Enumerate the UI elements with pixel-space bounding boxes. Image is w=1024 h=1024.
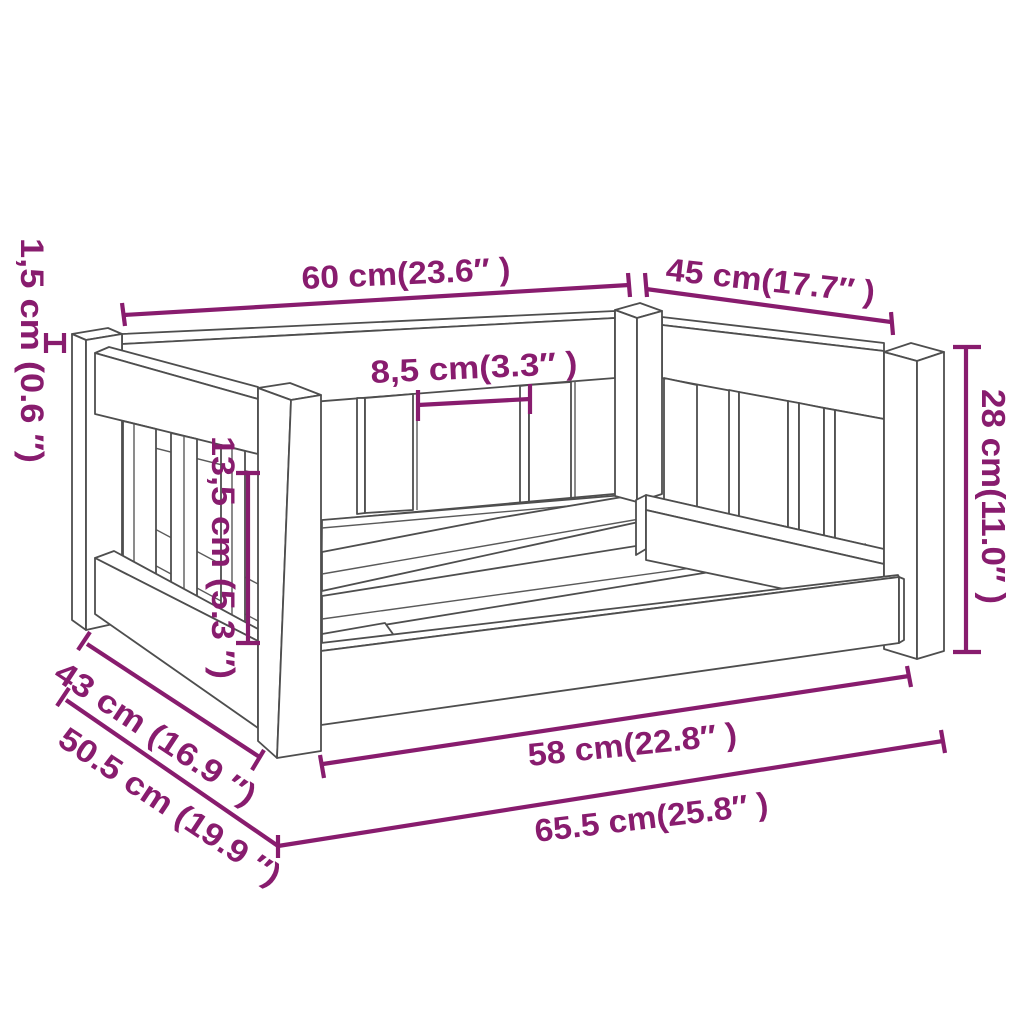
svg-text:28 cm(11.0″ ): 28 cm(11.0″ ) bbox=[975, 389, 1012, 604]
svg-text:13,5 cm (5.3 ″): 13,5 cm (5.3 ″) bbox=[205, 436, 241, 679]
svg-text:1,5 cm (0.6 ″): 1,5 cm (0.6 ″) bbox=[14, 238, 50, 463]
